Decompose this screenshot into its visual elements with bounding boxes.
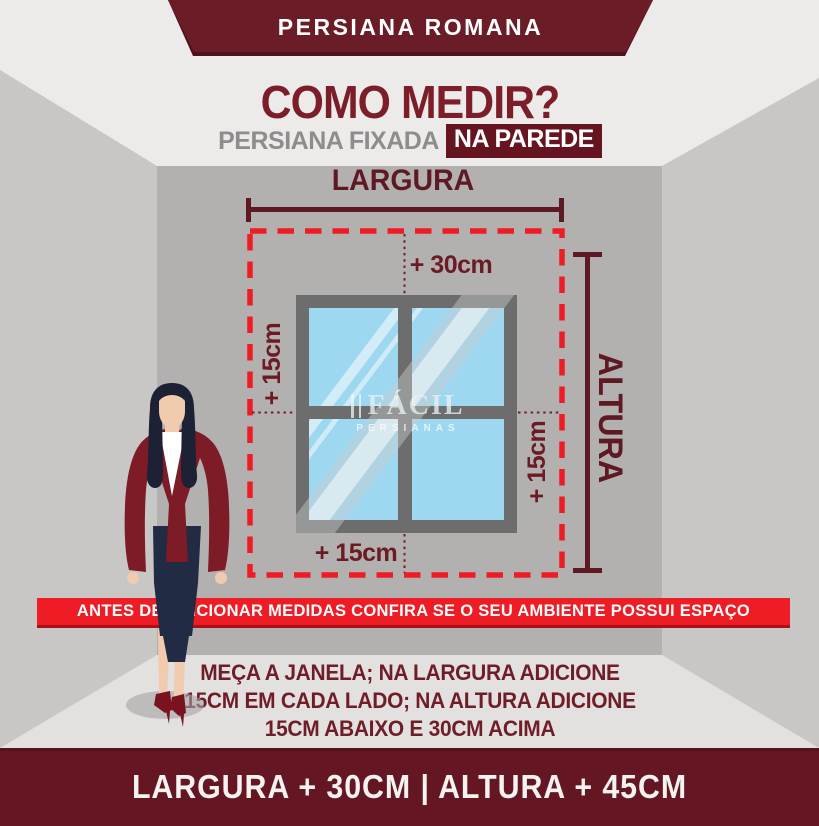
window-pane — [412, 419, 504, 520]
subtitle-highlight: NA PAREDE — [446, 124, 602, 158]
subtitle-prefix: PERSIANA FIXADA — [218, 127, 439, 156]
watermark: FÁCIL PERSIANAS — [328, 390, 488, 434]
watermark-brand: FÁCIL — [367, 390, 464, 422]
woman-hand — [215, 572, 227, 584]
woman-hand — [127, 572, 139, 584]
brand-bars-icon — [351, 394, 361, 418]
page-title: COMO MEDIR? — [131, 78, 689, 126]
top-banner-label: PERSIANA ROMANA — [168, 0, 653, 52]
room-wall-right — [662, 78, 819, 748]
subtitle: PERSIANA FIXADA NA PAREDE — [110, 124, 710, 158]
footer-formula: LARGURA + 30CM | ALTURA + 45CM — [33, 751, 786, 823]
watermark-sub: PERSIANAS — [328, 423, 488, 434]
offset-right-label: + 15cm — [524, 402, 550, 522]
infographic: PERSIANA ROMANA COMO MEDIR? PERSIANA FIX… — [0, 0, 819, 826]
offset-top-label: + 30cm — [399, 251, 503, 280]
footer-banner: LARGURA + 30CM | ALTURA + 45CM — [0, 748, 819, 826]
offset-left-label: + 15cm — [259, 304, 285, 424]
height-label: ALTURA — [591, 342, 629, 494]
width-label: LARGURA — [261, 164, 546, 198]
offset-bottom-label: + 15cm — [296, 539, 416, 568]
woman-figure — [108, 378, 248, 728]
woman-heel — [180, 714, 184, 727]
